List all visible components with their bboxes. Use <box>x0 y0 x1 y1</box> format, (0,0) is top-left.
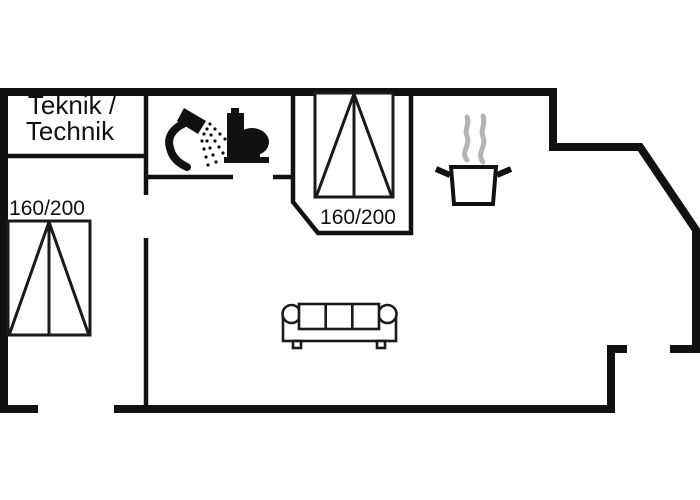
steam-right <box>481 116 484 162</box>
steam-left <box>465 117 468 160</box>
toilet-icon <box>224 108 269 163</box>
left-bed: 160/200 <box>8 197 90 335</box>
left-bed-size-label: 160/200 <box>9 197 85 220</box>
shower-icon <box>169 108 226 167</box>
middle-bed-size-label: 160/200 <box>320 206 396 229</box>
floorplan-drawing: Teknik / Technik 160/200 160/200 <box>0 0 700 500</box>
floorplan-page: Teknik / Technik 160/200 160/200 <box>0 0 700 500</box>
middle-bed: 160/200 <box>315 93 396 229</box>
cooking-pot-icon <box>436 116 511 204</box>
sofa-icon <box>283 304 397 348</box>
utility-room-label-line2: Technik <box>26 116 115 146</box>
utility-room-label: Teknik / Technik <box>26 90 117 146</box>
outer-wall-bottom-right <box>114 349 627 409</box>
shower-spray-dots <box>200 122 226 166</box>
